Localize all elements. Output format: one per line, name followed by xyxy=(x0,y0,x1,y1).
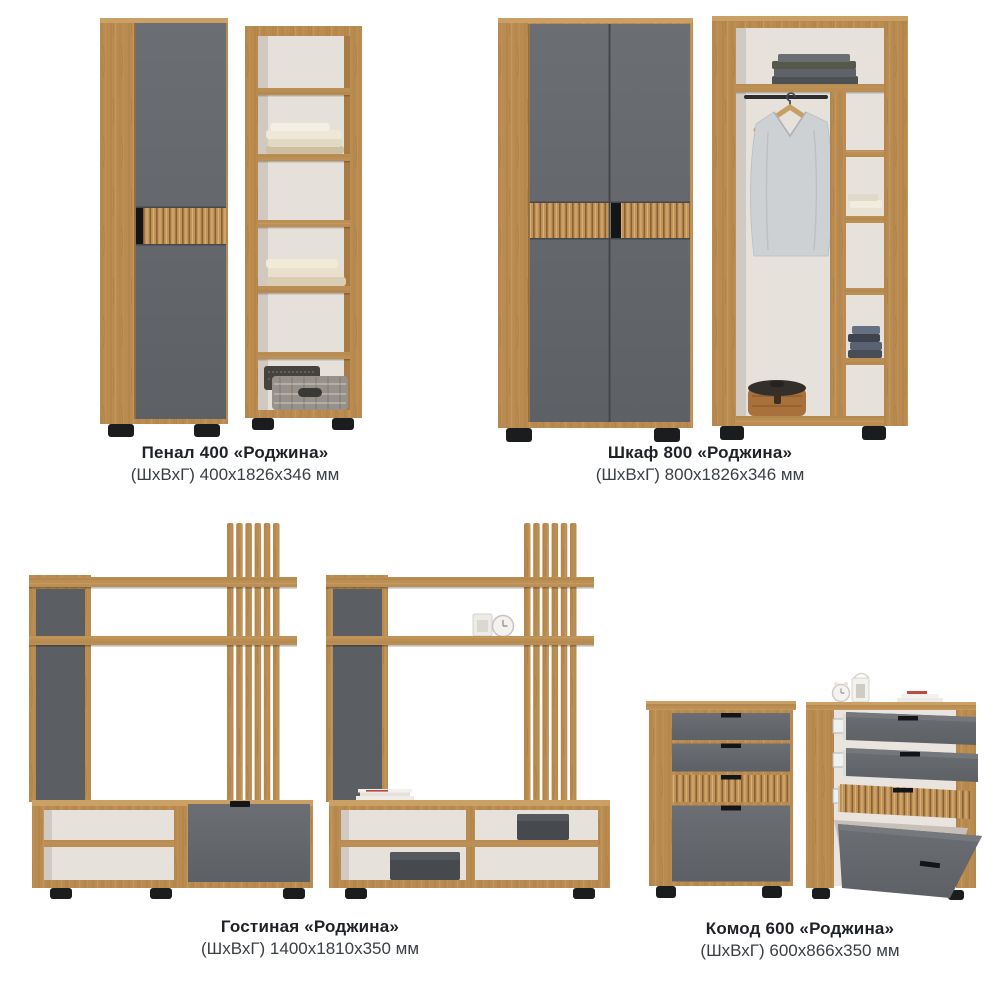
wardrobe-closed-view xyxy=(498,18,693,442)
vertical-slats xyxy=(524,523,577,803)
folded-towels xyxy=(848,194,882,216)
door-handle xyxy=(611,203,621,238)
shelf xyxy=(258,88,350,95)
drawer-handle xyxy=(893,788,913,793)
shelf xyxy=(846,288,884,295)
decor-lantern xyxy=(852,674,869,703)
product-title: Шкаф 800 «Роджина» xyxy=(545,443,855,462)
decor-books xyxy=(356,789,414,800)
hat-box xyxy=(748,380,806,416)
foot xyxy=(573,888,595,899)
wall-shelf xyxy=(326,577,594,587)
tv-stand-open xyxy=(329,800,610,888)
foot xyxy=(654,428,680,442)
shelf xyxy=(846,358,884,365)
door-handle xyxy=(136,208,143,244)
foot xyxy=(762,886,782,898)
drawer-handle xyxy=(721,775,741,780)
foot xyxy=(50,888,72,899)
livingroom-closed-view xyxy=(29,523,313,899)
catalog-illustrations xyxy=(0,0,1000,1000)
drawer-handle xyxy=(898,716,918,721)
product-title: Пенал 400 «Роджина» xyxy=(85,443,385,462)
wall-shelf xyxy=(29,636,297,645)
side-column-panel xyxy=(36,589,85,802)
shelf xyxy=(258,286,350,293)
wardrobe-open-view xyxy=(712,16,908,440)
foot xyxy=(345,888,367,899)
decor-storage-box xyxy=(390,852,460,880)
fluted-accent-strip xyxy=(136,208,226,244)
shelf xyxy=(846,216,884,223)
penal-open-view xyxy=(245,26,362,430)
wall-shelf xyxy=(29,577,297,587)
shelf xyxy=(258,352,350,359)
cabinet-top-edge xyxy=(100,18,228,23)
foot xyxy=(720,426,744,440)
product-caption-penal: Пенал 400 «Роджина» (ШхВхГ) 400x1826x346… xyxy=(85,443,385,484)
hanging-blouse xyxy=(750,112,832,256)
komod-side-panel xyxy=(806,710,834,888)
product-dimensions: (ШхВхГ) 1400x1810x350 мм xyxy=(160,939,460,958)
door-handle xyxy=(230,801,250,807)
flap-door xyxy=(672,806,790,882)
hanging-rail xyxy=(744,95,828,99)
foot xyxy=(150,888,172,899)
door-gap xyxy=(609,24,611,422)
shelf xyxy=(258,154,350,161)
product-dimensions: (ШхВхГ) 400x1826x346 мм xyxy=(85,465,385,484)
foot xyxy=(812,888,830,899)
top-decor xyxy=(833,674,944,703)
foot xyxy=(506,428,532,442)
door-handle xyxy=(721,806,741,811)
shelf xyxy=(258,220,350,227)
foot xyxy=(332,418,354,430)
vertical-slats xyxy=(227,523,280,803)
foot xyxy=(108,424,134,437)
shelf-decor xyxy=(473,614,514,637)
product-title: Комод 600 «Роджина» xyxy=(650,919,950,938)
komod-closed-view xyxy=(646,701,796,898)
shelf xyxy=(846,150,884,157)
folded-towels xyxy=(266,259,346,286)
tv-stand xyxy=(32,800,313,888)
foot xyxy=(283,888,305,899)
open-drawer xyxy=(843,712,976,745)
drawer-handle xyxy=(900,752,920,757)
side-column-panel xyxy=(333,589,382,802)
product-caption-shkaf: Шкаф 800 «Роджина» (ШхВхГ) 800x1826x346 … xyxy=(545,443,855,484)
decor-books xyxy=(897,691,943,702)
wardrobe-top-shelf xyxy=(736,84,884,92)
penal-closed-view xyxy=(100,18,228,437)
foot xyxy=(862,426,886,440)
shelf xyxy=(44,840,174,847)
stand-door xyxy=(188,804,310,882)
catalog-page: Пенал 400 «Роджина» (ШхВхГ) 400x1826x346… xyxy=(0,0,1000,1000)
inner-divider xyxy=(830,92,846,416)
product-dimensions: (ШхВхГ) 800x1826x346 мм xyxy=(545,465,855,484)
livingroom-open-view xyxy=(326,523,610,899)
basket-handle-slot xyxy=(298,388,322,397)
product-caption-gostinaya: Гостиная «Роджина» (ШхВхГ) 1400x1810x350… xyxy=(160,917,460,958)
decor-storage-box xyxy=(517,814,569,840)
folded-jeans xyxy=(848,326,882,358)
foot xyxy=(252,418,274,430)
drawer-handle xyxy=(721,713,741,718)
komod-open-view xyxy=(806,674,982,901)
wall-shelf xyxy=(326,636,594,645)
product-dimensions: (ШхВхГ) 600x866x350 мм xyxy=(650,941,950,960)
foot xyxy=(194,424,220,437)
product-title: Гостиная «Роджина» xyxy=(160,917,460,936)
foot xyxy=(656,886,676,898)
shelf xyxy=(341,840,598,847)
drawer-handle xyxy=(721,744,741,749)
product-caption-komod: Комод 600 «Роджина» (ШхВхГ) 600x866x350 … xyxy=(650,919,950,960)
folded-clothes xyxy=(772,54,858,85)
